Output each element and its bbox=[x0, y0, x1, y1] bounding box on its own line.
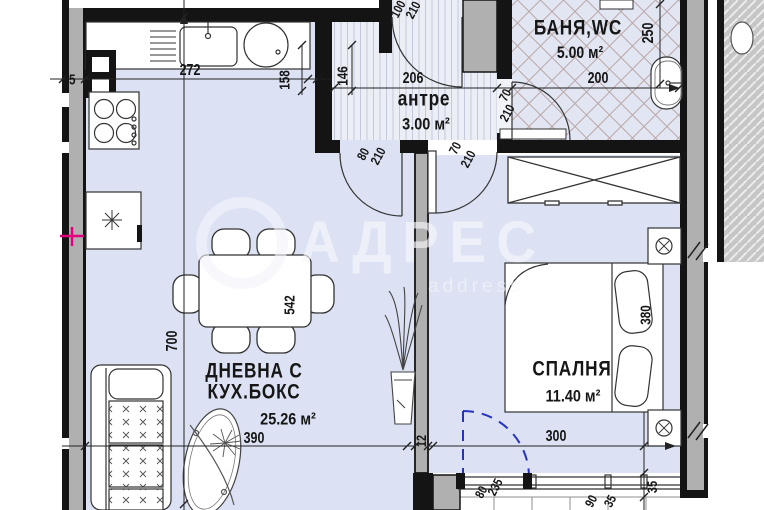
room-area-antre: 3.00 м² bbox=[402, 116, 450, 133]
room-area-living: 25.26 м² bbox=[260, 411, 316, 428]
room-label-bath: БАНЯ,WC bbox=[534, 18, 622, 39]
floor-plan: АДРЕС address. ДНЕВНА С КУХ.БОКС 25.26 м… bbox=[0, 0, 764, 510]
dim-542: 542 bbox=[283, 295, 298, 315]
room-label-living-2: КУХ.БОКС bbox=[208, 382, 301, 403]
room-area-bath: 5.00 м² bbox=[557, 45, 603, 62]
wash-basin bbox=[651, 57, 682, 109]
nightstand-lamp-bottom bbox=[648, 410, 681, 446]
dim-146: 146 bbox=[336, 66, 351, 86]
dim-250: 250 bbox=[641, 23, 657, 44]
room-label-bedroom: СПАЛНЯ bbox=[532, 359, 611, 380]
dim-12-wall: 12 bbox=[414, 435, 428, 447]
dim-272: 272 bbox=[180, 63, 201, 79]
nightstand-lamp-top bbox=[648, 228, 681, 264]
dim-380: 380 bbox=[639, 305, 654, 325]
bedroom-door-leaf bbox=[428, 151, 436, 213]
room-area-bedroom: 11.40 м² bbox=[546, 388, 601, 405]
dim-158: 158 bbox=[278, 70, 293, 90]
dim-200: 200 bbox=[588, 71, 609, 87]
dim-12-top: 12 bbox=[316, 73, 328, 87]
fridge bbox=[86, 192, 142, 249]
dim-300: 300 bbox=[546, 429, 567, 445]
dim-25: 25 bbox=[62, 73, 75, 88]
plan-geometry bbox=[0, 0, 764, 510]
stove bbox=[89, 92, 139, 149]
wardrobe bbox=[508, 157, 680, 205]
dim-35b: 35 bbox=[645, 481, 659, 493]
room-label-living-1: ДНЕВНА С bbox=[205, 361, 302, 382]
dim-206: 206 bbox=[403, 71, 424, 87]
dim-700: 700 bbox=[165, 331, 181, 352]
dim-390: 390 bbox=[244, 431, 265, 447]
room-label-antre: антре bbox=[398, 89, 451, 110]
sofa bbox=[91, 365, 171, 510]
